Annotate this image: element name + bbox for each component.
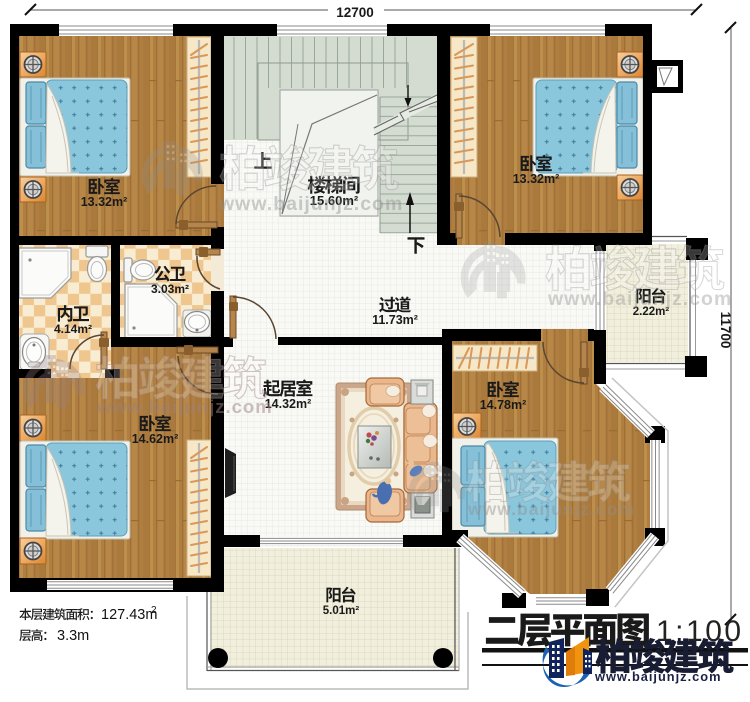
svg-text:13.32m²: 13.32m² [81, 195, 128, 209]
svg-text:14.78m²: 14.78m² [480, 398, 527, 412]
svg-text:13.32m²: 13.32m² [513, 172, 560, 186]
svg-text:14.62m²: 14.62m² [132, 432, 179, 446]
svg-text:5.01m²: 5.01m² [323, 605, 360, 617]
svg-text:www.baijunjz.com: www.baijunjz.com [594, 669, 721, 684]
svg-text:3.3m: 3.3m [57, 628, 89, 644]
svg-text:www.baijunjz.com: www.baijunjz.com [218, 193, 403, 215]
svg-text:127.43m: 127.43m [101, 607, 157, 623]
svg-text:11.73m²: 11.73m² [372, 313, 418, 327]
svg-text:www.baijunjz.com: www.baijunjz.com [547, 288, 732, 310]
svg-text:3.03m²: 3.03m² [151, 282, 189, 296]
svg-text:www.baijunjz.com: www.baijunjz.com [467, 499, 635, 519]
svg-text:4.14m²: 4.14m² [54, 322, 92, 336]
svg-text:11700: 11700 [718, 312, 733, 349]
svg-text:www.baijunjz.com: www.baijunjz.com [96, 396, 273, 417]
svg-text:12700: 12700 [336, 5, 374, 20]
svg-text:2: 2 [151, 605, 157, 616]
